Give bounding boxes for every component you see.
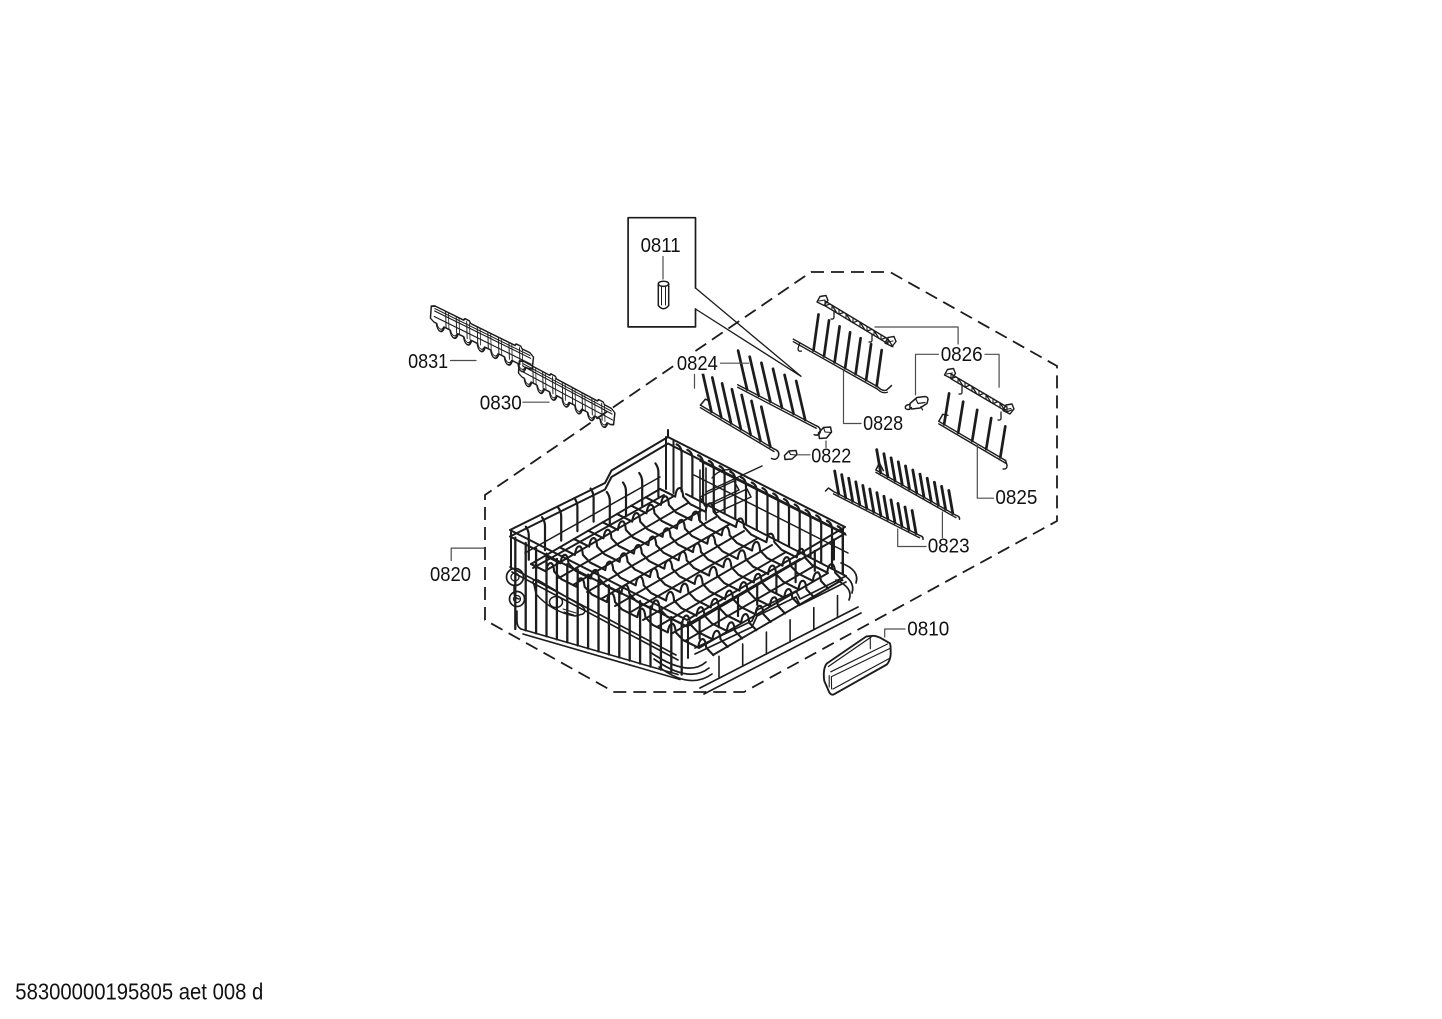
svg-text:0810: 0810 [907,618,949,641]
svg-text:0824: 0824 [677,352,718,375]
svg-text:0822: 0822 [811,444,851,467]
svg-text:0811: 0811 [641,234,681,257]
svg-text:0825: 0825 [995,486,1037,509]
svg-text:0820: 0820 [430,563,471,586]
svg-text:0831: 0831 [408,350,448,373]
svg-text:0823: 0823 [928,535,970,558]
svg-text:0826: 0826 [941,343,983,366]
svg-text:58300000195805 aet 008 d: 58300000195805 aet 008 d [15,978,263,1004]
svg-text:0828: 0828 [863,412,903,435]
svg-text:0830: 0830 [480,392,522,415]
